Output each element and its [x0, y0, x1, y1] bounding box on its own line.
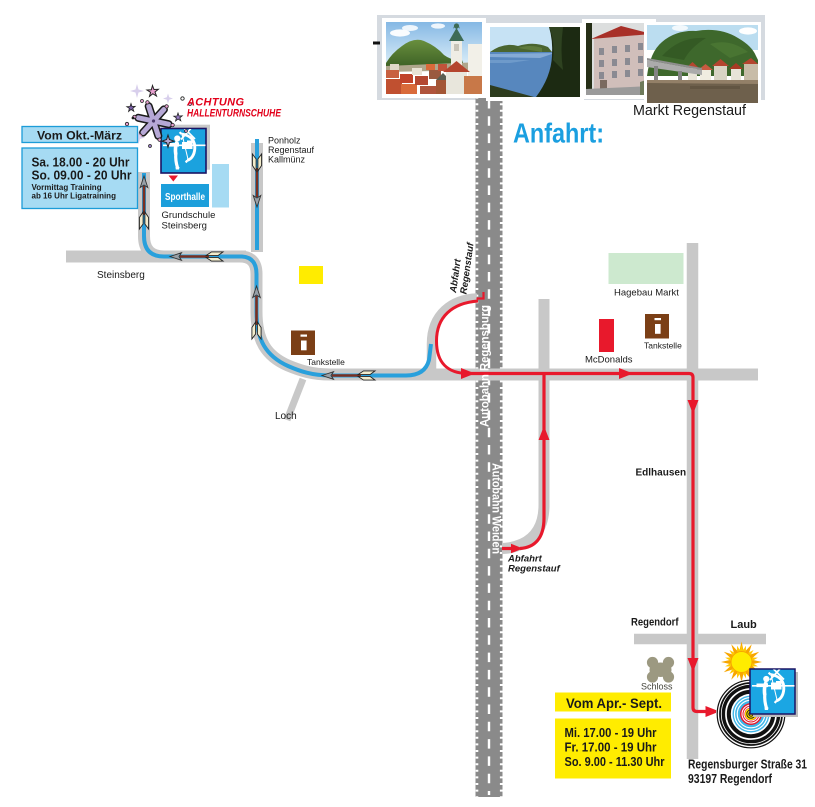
- svg-text:So. 9.00 - 11.30 Uhr: So. 9.00 - 11.30 Uhr: [565, 754, 665, 769]
- svg-text:Steinsberg: Steinsberg: [162, 221, 207, 232]
- svg-text:McDonalds: McDonalds: [585, 355, 633, 366]
- svg-text:Grundschule: Grundschule: [162, 210, 216, 221]
- svg-text:Vom Okt.-März: Vom Okt.-März: [37, 129, 122, 143]
- svg-text:Vom Apr.- Sept.: Vom Apr.- Sept.: [566, 696, 662, 711]
- svg-text:Tankstelle: Tankstelle: [307, 357, 345, 367]
- svg-text:Mi. 17.00 - 19 Uhr: Mi. 17.00 - 19 Uhr: [565, 725, 657, 740]
- svg-text:HALLENTURNSCHUHE: HALLENTURNSCHUHE: [187, 108, 282, 120]
- svg-text:Autobahn Regensburg: Autobahn Regensburg: [478, 305, 492, 427]
- svg-text:Kallmünz: Kallmünz: [268, 155, 306, 165]
- svg-text:Anfahrt:: Anfahrt:: [513, 118, 604, 149]
- svg-text:Laub: Laub: [731, 619, 758, 631]
- svg-text:Hagebau Markt: Hagebau Markt: [614, 288, 679, 299]
- svg-text:Markt Regenstauf: Markt Regenstauf: [633, 102, 747, 119]
- svg-text:Loch: Loch: [275, 411, 297, 422]
- svg-text:Edlhausen: Edlhausen: [636, 468, 687, 479]
- svg-text:Steinsberg: Steinsberg: [97, 270, 145, 281]
- svg-text:93197 Regendorf: 93197 Regendorf: [688, 771, 773, 786]
- svg-text:Tankstelle: Tankstelle: [644, 341, 682, 351]
- svg-text:ab 16 Uhr Ligatraining: ab 16 Uhr Ligatraining: [32, 192, 117, 201]
- svg-text:Schloss: Schloss: [641, 682, 673, 692]
- svg-text:Ponholz: Ponholz: [268, 136, 301, 146]
- svg-text:Autobahn Weiden: Autobahn Weiden: [490, 463, 502, 554]
- svg-text:Fr. 17.00 - 19 Uhr: Fr. 17.00 - 19 Uhr: [565, 740, 657, 755]
- svg-text:Sporthalle: Sporthalle: [165, 192, 205, 203]
- svg-text:Regenstauf: Regenstauf: [508, 564, 561, 575]
- svg-text:Regenstauf: Regenstauf: [268, 145, 315, 155]
- svg-text:So. 09.00 - 20 Uhr: So. 09.00 - 20 Uhr: [32, 168, 132, 183]
- svg-text:Regendorf: Regendorf: [631, 617, 679, 629]
- svg-text:Regensburger Straße 31: Regensburger Straße 31: [688, 757, 807, 772]
